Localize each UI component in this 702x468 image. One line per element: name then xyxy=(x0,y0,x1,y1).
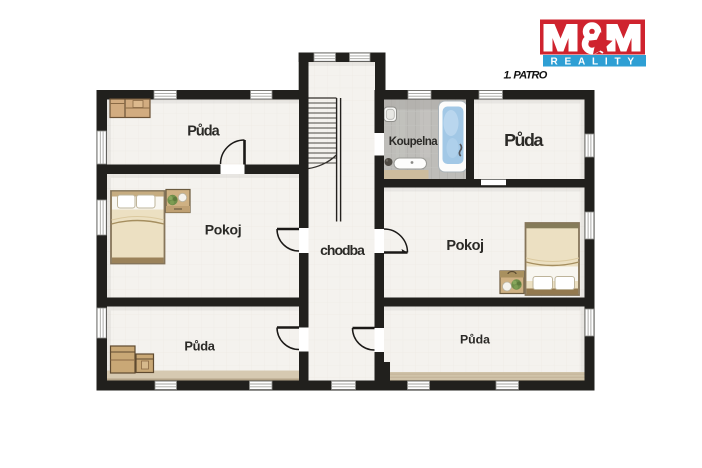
svg-text:chodba: chodba xyxy=(320,242,365,258)
svg-text:Koupelna: Koupelna xyxy=(389,136,438,148)
svg-text:Pokoj: Pokoj xyxy=(446,238,484,254)
svg-text:Pokoj: Pokoj xyxy=(205,222,242,238)
svg-text:1. PATRO: 1. PATRO xyxy=(503,70,547,82)
svg-text:Půda: Půda xyxy=(184,338,215,353)
svg-text:Půda: Půda xyxy=(504,130,543,150)
svg-text:REALITY: REALITY xyxy=(551,57,641,68)
svg-text:Půda: Půda xyxy=(460,332,490,346)
svg-text:Půda: Půda xyxy=(187,124,220,140)
